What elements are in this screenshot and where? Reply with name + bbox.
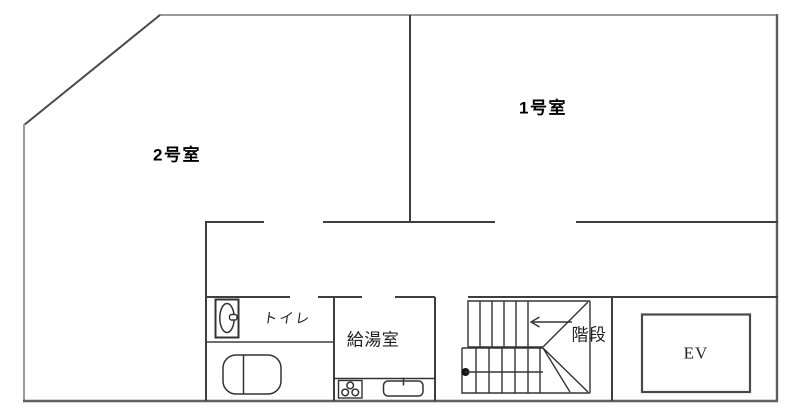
- room1-label: 1号室: [519, 100, 567, 117]
- stairs-landing-diagonals: [543, 302, 588, 392]
- building-outline: [23, 14, 778, 402]
- stairs-lower-flight: [462, 348, 590, 393]
- stove-icon: [339, 381, 363, 399]
- up-arrow-icon: [531, 317, 572, 327]
- stairs-icon: [462, 301, 591, 393]
- sink-icon: [384, 378, 424, 397]
- stairs-label: 階段: [572, 327, 607, 344]
- washbasin-icon: [216, 300, 239, 338]
- room2-label: 2号室: [153, 147, 201, 164]
- toilet-label: トイレ: [262, 313, 312, 327]
- elevator-label: EV: [684, 345, 709, 362]
- toilet-bowl-icon: [223, 355, 281, 394]
- floorplan: 1号室 2号室 トイレ 給湯室 階段 EV: [0, 0, 788, 411]
- outer-wall-diagonal: [24, 15, 161, 126]
- kitchenette-label: 給湯室: [347, 332, 400, 349]
